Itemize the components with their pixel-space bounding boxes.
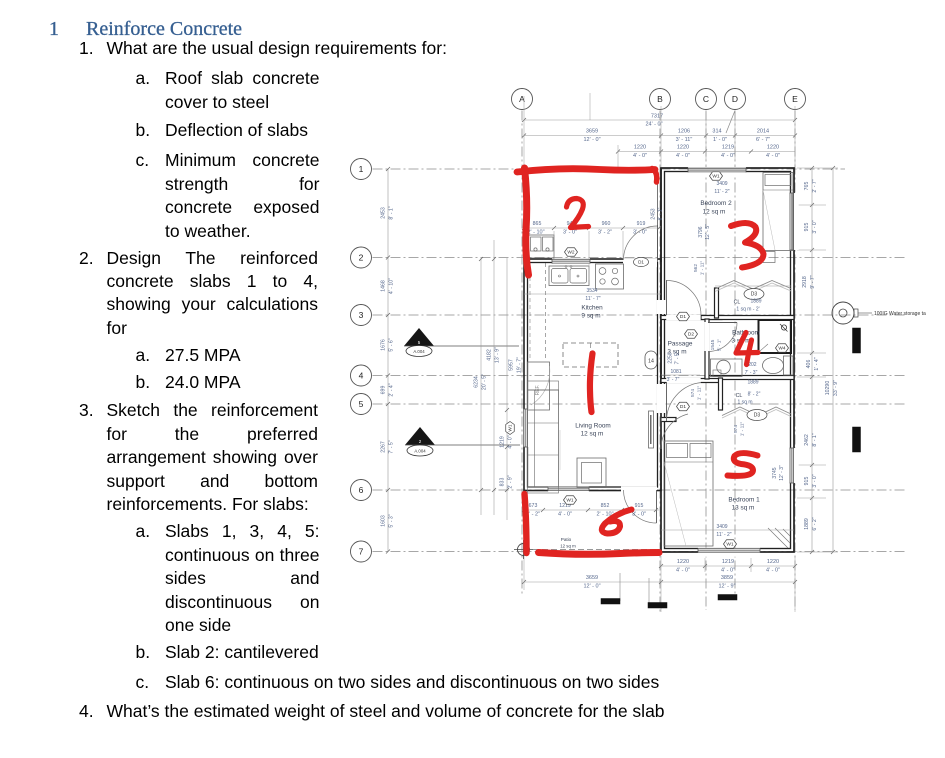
svg-text:A.004: A.004 xyxy=(414,449,426,454)
svg-text:3: 3 xyxy=(359,310,364,320)
svg-text:W1: W1 xyxy=(566,498,574,504)
svg-text:3' - 7": 3' - 7" xyxy=(667,377,680,383)
svg-text:D1: D1 xyxy=(680,314,686,320)
svg-text:A: A xyxy=(519,94,525,104)
svg-text:9 sq m: 9 sq m xyxy=(581,313,600,320)
svg-text:W1: W1 xyxy=(712,174,720,180)
svg-text:4' - 10": 4' - 10" xyxy=(389,278,395,294)
svg-text:314: 314 xyxy=(712,129,721,135)
svg-text:D3: D3 xyxy=(751,292,758,298)
svg-text:3' - 11": 3' - 11" xyxy=(676,137,693,143)
svg-text:2462: 2462 xyxy=(804,434,810,446)
svg-text:2453: 2453 xyxy=(381,207,387,219)
svg-text:3409: 3409 xyxy=(716,524,727,530)
svg-text:6' - 7": 6' - 7" xyxy=(756,137,770,143)
svg-text:3' - 2": 3' - 2" xyxy=(598,230,612,236)
svg-text:1889: 1889 xyxy=(804,518,810,530)
svg-text:3' - 0": 3' - 0" xyxy=(632,512,646,518)
svg-text:1' - 0": 1' - 0" xyxy=(713,137,727,143)
svg-text:1603: 1603 xyxy=(381,515,387,527)
svg-text:Passage: Passage xyxy=(668,341,693,348)
svg-text:11' - 2": 11' - 2" xyxy=(714,189,729,195)
svg-text:CL: CL xyxy=(736,393,743,399)
svg-text:1220: 1220 xyxy=(634,145,646,151)
svg-text:8' - 2": 8' - 2" xyxy=(748,392,761,398)
svg-text:8' - 1": 8' - 1" xyxy=(658,207,664,220)
svg-text:5957: 5957 xyxy=(509,359,515,371)
svg-text:1: 1 xyxy=(359,164,364,174)
svg-text:1676: 1676 xyxy=(381,339,387,351)
svg-text:1468: 1468 xyxy=(381,280,387,292)
svg-text:1219: 1219 xyxy=(722,559,734,565)
svg-text:1206: 1206 xyxy=(678,129,690,135)
svg-text:5' - 6": 5' - 6" xyxy=(389,338,395,351)
svg-text:20' - 5": 20' - 5" xyxy=(482,374,488,390)
svg-text:1220: 1220 xyxy=(677,145,689,151)
svg-text:Kitchen: Kitchen xyxy=(581,305,603,312)
svg-text:19' - 7": 19' - 7" xyxy=(517,357,523,373)
svg-text:12' - 5": 12' - 5" xyxy=(705,224,711,240)
svg-text:3659: 3659 xyxy=(586,129,598,135)
svg-text:852: 852 xyxy=(601,503,610,509)
svg-text:3745: 3745 xyxy=(772,467,778,478)
svg-text:B: B xyxy=(657,94,663,104)
svg-text:7: 7 xyxy=(359,547,364,557)
svg-text:11' - 2": 11' - 2" xyxy=(716,532,731,538)
svg-text:11' - 7": 11' - 7" xyxy=(585,296,600,302)
svg-text:8' - 1": 8' - 1" xyxy=(389,206,395,219)
svg-text:5' - 3": 5' - 3" xyxy=(389,514,395,527)
svg-text:2918: 2918 xyxy=(802,276,808,288)
svg-text:574: 574 xyxy=(733,425,739,433)
svg-text:2' - 7": 2' - 7" xyxy=(812,179,818,192)
svg-text:1' - 11": 1' - 11" xyxy=(697,385,703,400)
svg-text:13' - 9": 13' - 9" xyxy=(495,347,501,363)
svg-text:1219: 1219 xyxy=(722,145,734,151)
svg-text:4' - 0": 4' - 0" xyxy=(558,512,572,518)
svg-text:4' - 0": 4' - 0" xyxy=(721,568,735,574)
svg-text:3' - 0": 3' - 0" xyxy=(812,474,818,487)
svg-text:833: 833 xyxy=(500,478,506,487)
svg-text:3' - 0": 3' - 0" xyxy=(563,230,577,236)
svg-text:12 sq m: 12 sq m xyxy=(703,209,726,216)
svg-text:E: E xyxy=(792,94,798,104)
svg-text:W4: W4 xyxy=(778,346,786,352)
svg-text:5: 5 xyxy=(359,399,364,409)
svg-text:Living Room: Living Room xyxy=(575,423,611,430)
svg-text:915: 915 xyxy=(804,477,810,486)
svg-text:2' - 9": 2' - 9" xyxy=(508,475,514,488)
svg-text:7' - 3": 7' - 3" xyxy=(745,370,758,376)
svg-text:12' - 3": 12' - 3" xyxy=(779,465,785,481)
svg-text:1889: 1889 xyxy=(747,380,758,386)
svg-text:4' - 0": 4' - 0" xyxy=(766,568,780,574)
svg-text:406: 406 xyxy=(806,360,812,369)
svg-text:1' - 4": 1' - 4" xyxy=(814,357,820,370)
svg-text:D: D xyxy=(732,94,738,104)
svg-text:13 sq m: 13 sq m xyxy=(732,505,755,512)
svg-text:6' - 2": 6' - 2" xyxy=(812,517,818,530)
svg-text:3534: 3534 xyxy=(586,288,597,294)
svg-text:4' - 0": 4' - 0" xyxy=(633,153,647,159)
svg-text:2: 2 xyxy=(359,253,364,263)
svg-text:Bedroom 2: Bedroom 2 xyxy=(700,200,732,207)
svg-text:1219: 1219 xyxy=(500,436,506,448)
svg-text:4' - 0": 4' - 0" xyxy=(766,153,780,159)
svg-text:W1: W1 xyxy=(508,424,514,432)
svg-text:6: 6 xyxy=(359,485,364,495)
svg-text:CL: CL xyxy=(734,300,741,306)
svg-text:D1: D1 xyxy=(680,404,686,410)
svg-text:1081: 1081 xyxy=(670,369,681,375)
svg-text:1 sq m - 2': 1 sq m - 2' xyxy=(736,307,759,313)
svg-text:12' - 0": 12' - 0" xyxy=(583,137,600,143)
svg-text:1 sq m: 1 sq m xyxy=(737,400,752,406)
svg-text:3659: 3659 xyxy=(586,575,598,581)
svg-text:1220: 1220 xyxy=(767,145,779,151)
svg-text:673: 673 xyxy=(529,503,538,509)
svg-text:1889: 1889 xyxy=(750,299,761,305)
svg-text:2014: 2014 xyxy=(757,129,769,135)
svg-text:W1: W1 xyxy=(726,542,734,548)
svg-text:1' - 11": 1' - 11" xyxy=(740,421,746,436)
svg-text:10290: 10290 xyxy=(825,381,831,396)
svg-text:100IG Water storage ta: 100IG Water storage ta xyxy=(874,311,926,317)
svg-text:562: 562 xyxy=(693,264,699,272)
svg-text:D2: D2 xyxy=(688,332,694,338)
svg-text:12 sq m: 12 sq m xyxy=(560,544,576,549)
svg-text:D3: D3 xyxy=(754,413,761,419)
svg-text:7' - 5": 7' - 5" xyxy=(675,351,681,364)
svg-text:4182: 4182 xyxy=(487,349,493,361)
svg-text:4' - 0": 4' - 0" xyxy=(676,568,690,574)
svg-text:7' - 5": 7' - 5" xyxy=(389,440,395,453)
svg-text:24' - 0": 24' - 0" xyxy=(645,122,662,128)
svg-text:12' - 9": 12' - 9" xyxy=(718,584,735,590)
svg-text:W2: W2 xyxy=(567,250,575,256)
svg-text:3859: 3859 xyxy=(721,575,733,581)
svg-text:3796: 3796 xyxy=(698,226,704,237)
svg-text:8' - 1": 8' - 1" xyxy=(812,433,818,446)
svg-text:Bedroom 1: Bedroom 1 xyxy=(728,497,760,504)
svg-text:915: 915 xyxy=(635,503,644,509)
svg-text:C: C xyxy=(703,94,709,104)
svg-text:12' - 0": 12' - 0" xyxy=(583,584,600,590)
svg-text:7317: 7317 xyxy=(651,114,663,120)
svg-text:574: 574 xyxy=(690,389,696,397)
svg-text:Patio: Patio xyxy=(561,537,572,542)
svg-text:1220: 1220 xyxy=(677,559,689,565)
svg-text:1' - 11": 1' - 11" xyxy=(700,260,706,275)
svg-text:3' - 0": 3' - 0" xyxy=(633,230,647,236)
svg-text:14: 14 xyxy=(648,359,654,365)
svg-text:865: 865 xyxy=(533,221,542,227)
svg-text:2267: 2267 xyxy=(381,441,387,453)
svg-text:699: 699 xyxy=(381,386,387,395)
svg-text:D1: D1 xyxy=(638,260,644,265)
svg-text:960: 960 xyxy=(602,221,611,227)
svg-text:A.004: A.004 xyxy=(413,349,425,354)
svg-text:4' - 0": 4' - 0" xyxy=(676,153,690,159)
svg-text:5' - 1": 5' - 1" xyxy=(717,339,723,352)
svg-text:915: 915 xyxy=(804,223,810,232)
svg-text:919: 919 xyxy=(637,221,646,227)
svg-text:4: 4 xyxy=(359,371,364,381)
svg-text:2453: 2453 xyxy=(651,208,657,219)
svg-text:12 sq m: 12 sq m xyxy=(581,431,604,438)
svg-text:4' - 0": 4' - 0" xyxy=(721,153,735,159)
svg-text:3' - 0": 3' - 0" xyxy=(812,220,818,233)
svg-text:2' - 10": 2' - 10" xyxy=(527,230,544,236)
svg-text:33' - 9": 33' - 9" xyxy=(833,380,839,396)
svg-text:2' - 4": 2' - 4" xyxy=(389,383,395,396)
svg-text:2250: 2250 xyxy=(668,352,674,363)
svg-text:4' - 0": 4' - 0" xyxy=(508,435,514,448)
svg-text:9' - 7": 9' - 7" xyxy=(810,275,816,288)
svg-text:1220: 1220 xyxy=(767,559,779,565)
svg-text:1545: 1545 xyxy=(710,339,716,350)
svg-text:765: 765 xyxy=(804,182,810,191)
svg-text:6234: 6234 xyxy=(474,376,480,388)
svg-text:3409: 3409 xyxy=(716,181,727,187)
